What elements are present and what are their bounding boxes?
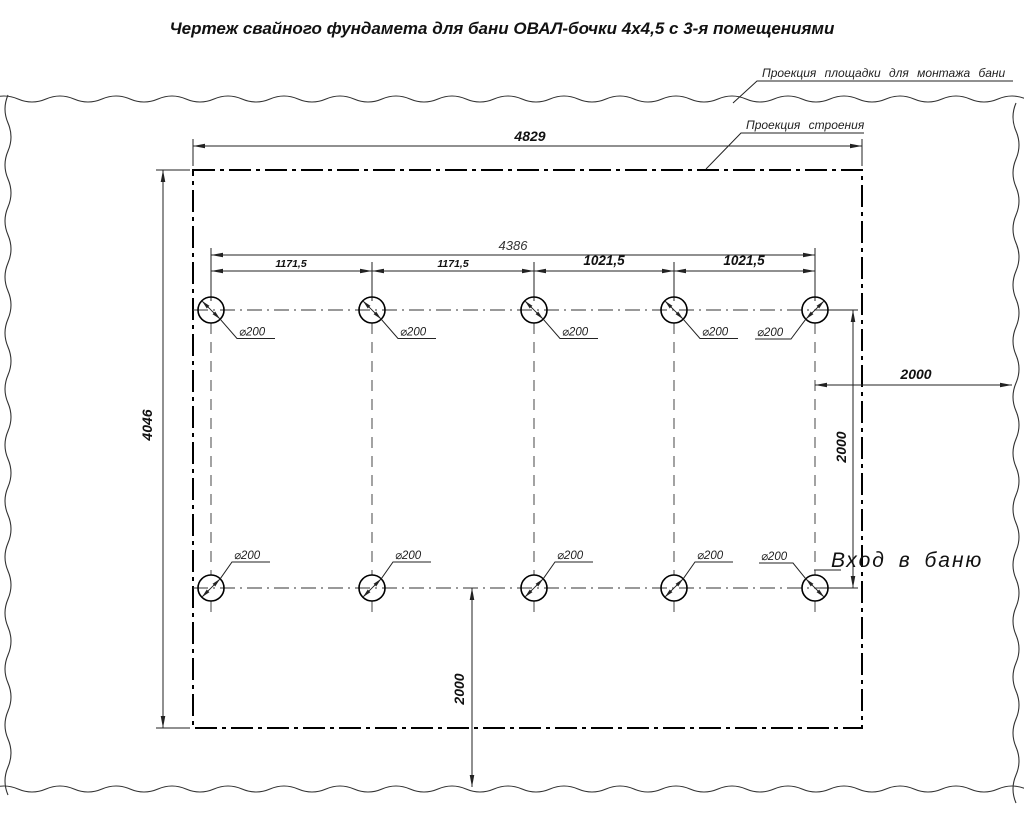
dim-bottom-offset: 2000 [451, 588, 472, 787]
dim-building-width: 4829 [193, 128, 862, 166]
pile-bottom-1: ⌀200 [198, 550, 270, 601]
dim-bottom-offset-value: 2000 [451, 673, 467, 705]
callout-building-leader [706, 133, 864, 169]
callout-entrance: Вход в баню [814, 549, 983, 572]
pile-diameter-label: ⌀200 [562, 327, 589, 339]
pile-diameter-label: ⌀200 [757, 327, 784, 339]
site-boundary [0, 95, 1024, 803]
dim-building-width-value: 4829 [513, 128, 545, 144]
callout-building-label: Проекция строения [746, 118, 865, 132]
site-boundary-top [0, 96, 1024, 102]
pile-diameter-label: ⌀200 [761, 551, 788, 563]
dim-building-height-value: 4046 [139, 409, 155, 441]
pile-bottom-2: ⌀200 [359, 550, 431, 601]
pile-diameter-label: ⌀200 [702, 327, 729, 339]
pile-diameter-label: ⌀200 [234, 550, 261, 562]
dim-building-height: 4046 [139, 170, 190, 728]
callout-site: Проекция площадки для монтажа бани [733, 66, 1013, 103]
dim-pile-span: 4386 1171,5 1171,5 1021,5 1021,5 [211, 238, 815, 301]
site-boundary-right [1013, 103, 1019, 803]
dim-row-spacing: 2000 [833, 310, 853, 588]
pile-bottom-4: ⌀200 [661, 550, 733, 601]
dim-spacing-1: 1171,5 [275, 258, 306, 270]
callout-site-label: Проекция площадки для монтажа бани [762, 66, 1006, 80]
pile-diameter-label: ⌀200 [239, 327, 266, 339]
dim-spacing-2: 1171,5 [437, 258, 468, 270]
pile-diameter-label: ⌀200 [697, 550, 724, 562]
dim-entrance-offset-value: 2000 [899, 366, 931, 382]
pile-diameter-label: ⌀200 [400, 327, 427, 339]
site-boundary-left [5, 95, 11, 795]
pile-top-4: ⌀200 [661, 297, 738, 339]
dim-spacing-3: 1021,5 [583, 253, 625, 268]
site-boundary-bottom [0, 786, 1024, 792]
pile-diameter-label: ⌀200 [395, 550, 422, 562]
pile-top-1: ⌀200 [198, 297, 275, 339]
pile-top-2: ⌀200 [359, 297, 436, 339]
callout-entrance-label: Вход в баню [831, 549, 983, 572]
dim-row-spacing-value: 2000 [833, 431, 849, 463]
pile-axes [193, 310, 858, 620]
callout-building: Проекция строения [706, 118, 865, 169]
drawing-title: Чертеж свайного фундамета для бани ОВАЛ-… [170, 19, 835, 38]
pile-bottom-5: ⌀200 [759, 551, 828, 601]
dim-entrance-offset: 2000 [815, 366, 1012, 385]
pile-diameter-label: ⌀200 [557, 550, 584, 562]
foundation-drawing: Чертеж свайного фундамета для бани ОВАЛ-… [0, 0, 1024, 819]
foundation-drawing-page: Чертеж свайного фундамета для бани ОВАЛ-… [0, 0, 1024, 819]
dim-pile-span-value: 4386 [499, 238, 529, 253]
pile-top-5: ⌀200 [755, 297, 828, 339]
pile-top-3: ⌀200 [521, 297, 598, 339]
pile-bottom-3: ⌀200 [521, 550, 593, 601]
dim-spacing-4: 1021,5 [723, 253, 765, 268]
pile-grid: ⌀200 ⌀200 ⌀200 ⌀200 ⌀200 [198, 297, 828, 601]
